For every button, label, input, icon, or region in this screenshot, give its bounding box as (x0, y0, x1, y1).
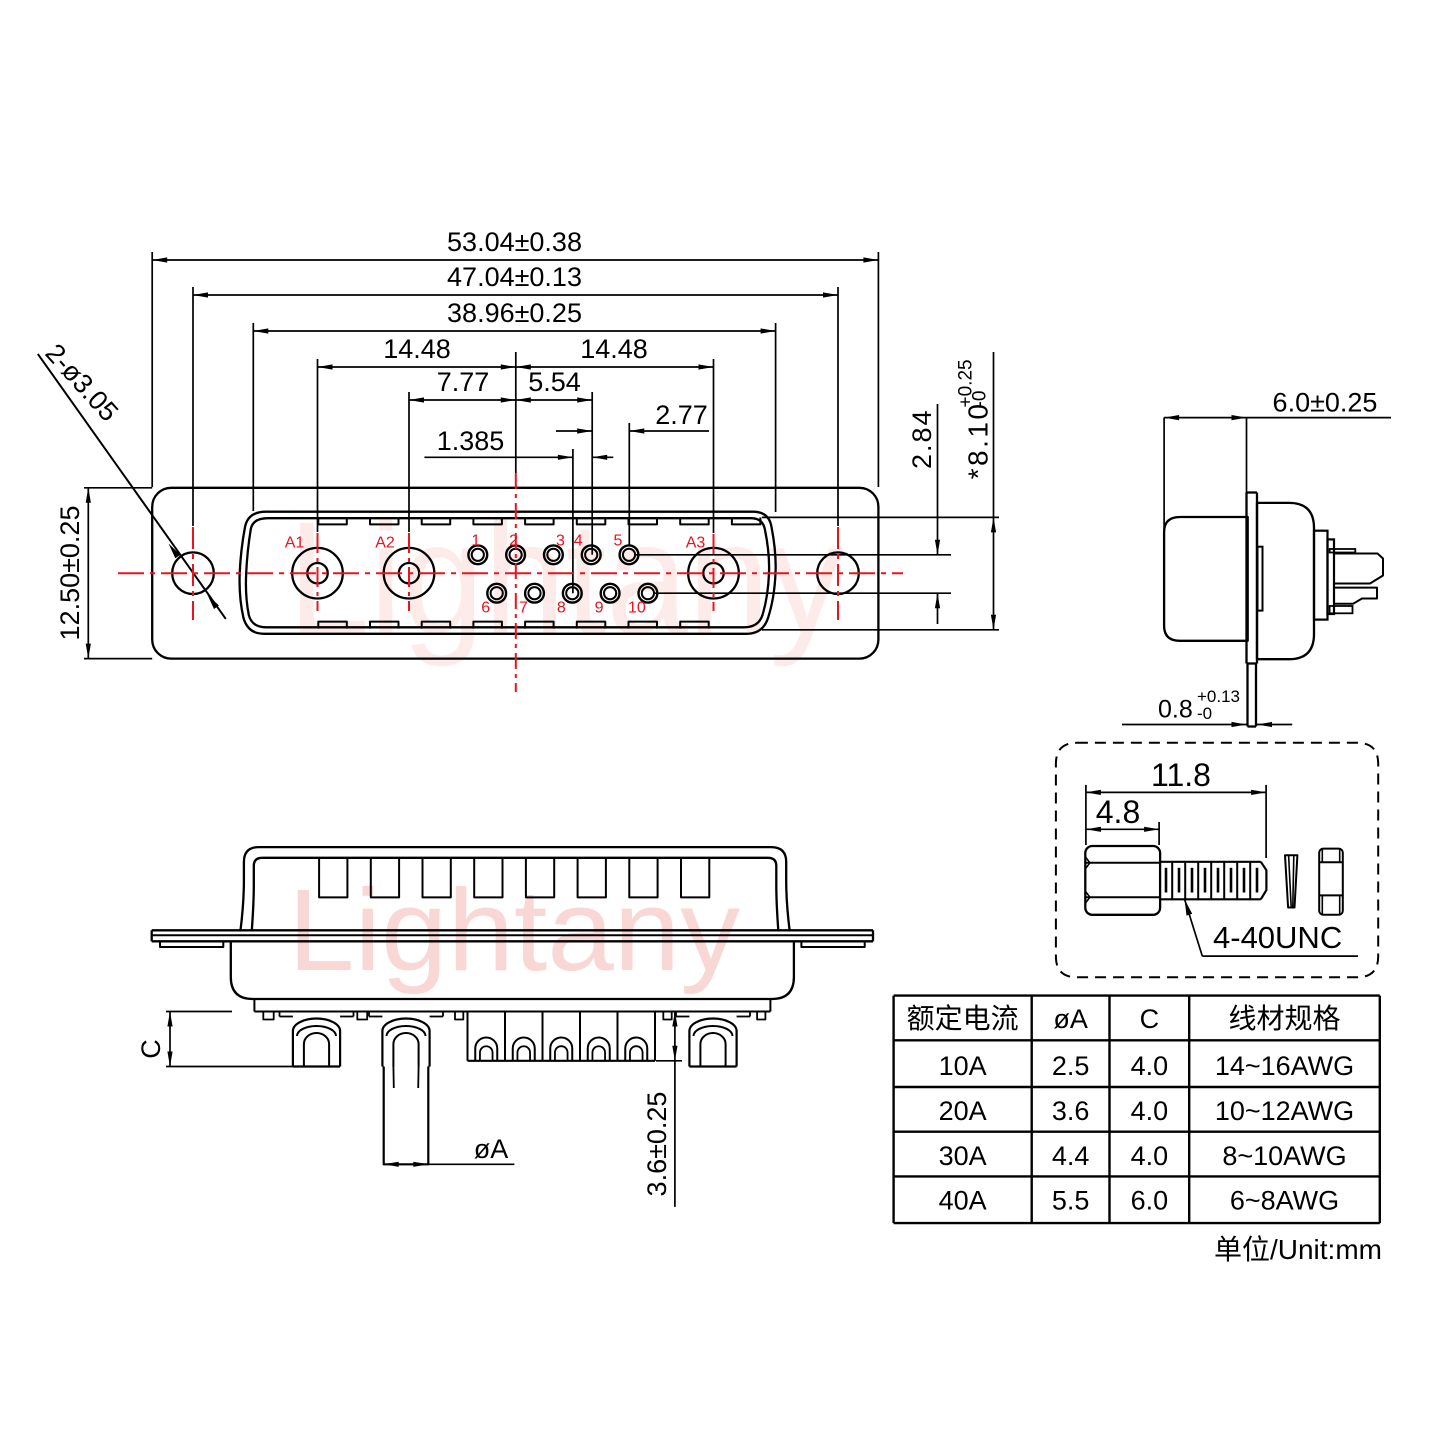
svg-text:øA: øA (474, 1134, 509, 1164)
svg-text:14.48: 14.48 (383, 334, 451, 364)
svg-text:C: C (136, 1039, 166, 1059)
svg-text:A1: A1 (285, 535, 305, 552)
svg-text:øA: øA (1053, 1004, 1088, 1034)
svg-text:C: C (1140, 1004, 1160, 1034)
svg-text:8~10AWG: 8~10AWG (1222, 1141, 1346, 1171)
svg-text:6: 6 (481, 600, 490, 617)
svg-text:1: 1 (471, 533, 480, 550)
svg-text:0.8: 0.8 (1158, 696, 1193, 724)
svg-text:14.48: 14.48 (580, 334, 648, 364)
svg-text:11.8: 11.8 (1151, 757, 1211, 793)
svg-text:4: 4 (574, 533, 583, 550)
svg-text:7.77: 7.77 (437, 367, 490, 397)
svg-text:*8.10: *8.10 (963, 401, 994, 479)
svg-text:4.8: 4.8 (1096, 794, 1140, 830)
svg-text:6.0±0.25: 6.0±0.25 (1273, 388, 1378, 418)
svg-text:53.04±0.38: 53.04±0.38 (447, 227, 582, 257)
svg-text:4-40UNC: 4-40UNC (1213, 920, 1342, 955)
svg-text:3.6: 3.6 (1052, 1096, 1090, 1126)
svg-text:5: 5 (614, 533, 623, 550)
svg-text:6~8AWG: 6~8AWG (1230, 1186, 1339, 1216)
svg-text:9: 9 (595, 600, 604, 617)
svg-text:-0: -0 (970, 391, 991, 408)
svg-text:6.0: 6.0 (1131, 1186, 1169, 1216)
svg-text:10: 10 (628, 600, 646, 617)
svg-text:7: 7 (519, 600, 528, 617)
svg-text:14~16AWG: 14~16AWG (1215, 1051, 1354, 1081)
svg-text:8: 8 (557, 600, 566, 617)
svg-text:30A: 30A (939, 1141, 987, 1171)
svg-text:12.50±0.25: 12.50±0.25 (55, 506, 85, 641)
svg-text:线材规格: 线材规格 (1228, 1003, 1340, 1034)
svg-text:5.54: 5.54 (528, 367, 581, 397)
svg-text:4.4: 4.4 (1052, 1141, 1090, 1171)
svg-text:20A: 20A (939, 1096, 987, 1126)
svg-text:4.0: 4.0 (1131, 1096, 1169, 1126)
svg-text:40A: 40A (939, 1186, 987, 1216)
svg-text:-0: -0 (1197, 704, 1212, 723)
svg-text:2: 2 (509, 533, 518, 550)
svg-text:4.0: 4.0 (1131, 1051, 1169, 1081)
svg-text:2.84: 2.84 (907, 408, 937, 469)
svg-text:4.0: 4.0 (1131, 1141, 1169, 1171)
svg-text:2.5: 2.5 (1052, 1051, 1090, 1081)
svg-text:5.5: 5.5 (1052, 1186, 1090, 1216)
svg-text:3: 3 (556, 533, 565, 550)
svg-text:1.385: 1.385 (437, 426, 505, 456)
svg-text:单位/Unit:mm: 单位/Unit:mm (1214, 1234, 1382, 1265)
svg-text:47.04±0.13: 47.04±0.13 (447, 262, 582, 292)
svg-text:A3: A3 (686, 535, 706, 552)
svg-text:10~12AWG: 10~12AWG (1215, 1096, 1354, 1126)
svg-text:38.96±0.25: 38.96±0.25 (447, 298, 582, 328)
svg-text:2.77: 2.77 (655, 400, 708, 430)
svg-text:3.6±0.25: 3.6±0.25 (642, 1092, 672, 1197)
svg-text:A2: A2 (375, 535, 395, 552)
svg-text:10A: 10A (939, 1051, 987, 1081)
svg-text:Lightany: Lightany (288, 488, 843, 667)
svg-text:额定电流: 额定电流 (907, 1003, 1019, 1034)
